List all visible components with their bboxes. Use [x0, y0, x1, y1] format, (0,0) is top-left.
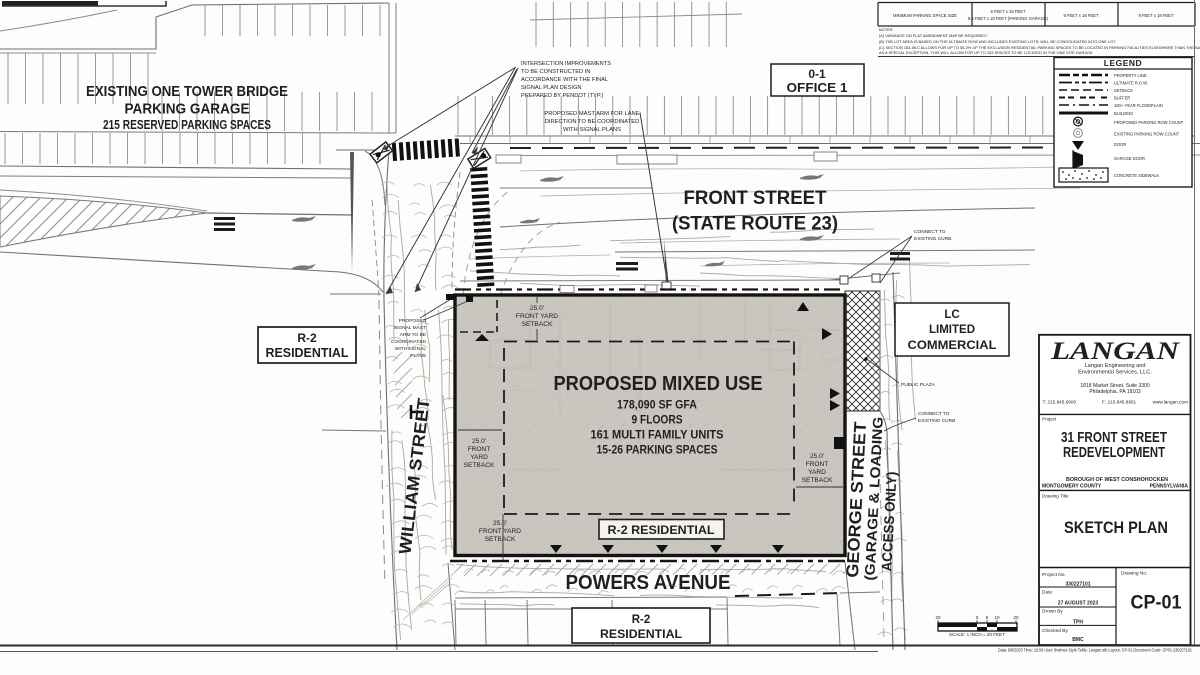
svg-text:LC: LC	[944, 309, 959, 321]
svg-text:161 MULTI FAMILY UNITS: 161 MULTI FAMILY UNITS	[591, 428, 724, 442]
svg-text:YARD: YARD	[470, 454, 488, 461]
svg-text:215 RESERVED PARKING SPACES: 215 RESERVED PARKING SPACES	[103, 118, 271, 132]
svg-text:SIGNAL PLAN DESIGN: SIGNAL PLAN DESIGN	[521, 85, 581, 91]
svg-text:TPH: TPH	[1073, 620, 1083, 626]
svg-text:PROPOSED PARKING ROW COUNT: PROPOSED PARKING ROW COUNT	[1114, 120, 1184, 125]
svg-text:100+-YEAR FLOODPLAIN: 100+-YEAR FLOODPLAIN	[1114, 103, 1163, 108]
svg-text:20: 20	[1013, 615, 1019, 620]
svg-text:RESIDENTIAL: RESIDENTIAL	[600, 629, 682, 641]
svg-text:ULTIMATE R.O.W.: ULTIMATE R.O.W.	[1114, 81, 1148, 86]
svg-text:(STATE ROUTE 23): (STATE ROUTE 23)	[672, 214, 838, 235]
svg-text:CONNECT TO: CONNECT TO	[914, 229, 946, 235]
svg-text:0: 0	[976, 615, 979, 620]
svg-text:25.0': 25.0'	[493, 520, 507, 527]
svg-text:T: 215.845.6900: T: 215.845.6900	[1043, 400, 1077, 405]
svg-text:25.0': 25.0'	[810, 453, 824, 460]
svg-text:www.langan.com: www.langan.com	[1153, 400, 1189, 405]
svg-text:EXISTING CURB: EXISTING CURB	[918, 418, 955, 424]
svg-text:FRONT YARD: FRONT YARD	[516, 313, 558, 320]
svg-text:PROPOSED MIXED USE: PROPOSED MIXED USE	[554, 373, 763, 395]
svg-text:Drawing Title: Drawing Title	[1042, 494, 1069, 499]
svg-text:AS A SPECIAL EXCEPTION. THIS W: AS A SPECIAL EXCEPTION. THIS WILL ALLOW …	[879, 50, 1094, 55]
svg-text:SETBACK: SETBACK	[802, 477, 833, 484]
svg-text:Checked By: Checked By	[1042, 628, 1068, 634]
svg-text:BUFFER: BUFFER	[1114, 96, 1130, 101]
svg-text:DOOR: DOOR	[1114, 142, 1126, 147]
svg-text:REDEVELOPMENT: REDEVELOPMENT	[1063, 444, 1165, 461]
svg-text:BOROUGH OF WEST CONSHOHOCKEN: BOROUGH OF WEST CONSHOHOCKEN	[1066, 477, 1168, 483]
svg-text:Drawing No.: Drawing No.	[1121, 571, 1147, 577]
svg-text:WITH SIGNAL: WITH SIGNAL	[395, 346, 427, 352]
svg-text:CP-01: CP-01	[1131, 593, 1182, 614]
svg-text:LEGEND: LEGEND	[1104, 58, 1142, 68]
svg-text:EXISTING PARKING ROW COUNT: EXISTING PARKING ROW COUNT	[1114, 132, 1180, 137]
svg-text:NOTES:: NOTES:	[879, 27, 893, 32]
svg-text:SCALE: 1 INCH = 20 FEET: SCALE: 1 INCH = 20 FEET	[949, 632, 1005, 637]
svg-text:178,090 SF GFA: 178,090 SF GFA	[617, 398, 697, 412]
svg-text:8.5 FEET x 18 FEET (PARKING GA: 8.5 FEET x 18 FEET (PARKING GARAGE)	[968, 16, 1049, 21]
svg-text:PROPOSED: PROPOSED	[399, 318, 427, 324]
svg-text:CONNECT TO: CONNECT TO	[918, 411, 950, 417]
svg-text:Langan Engineering and: Langan Engineering and	[1085, 363, 1146, 369]
svg-text:F: 215.845.8901: F: 215.845.8901	[1102, 400, 1137, 405]
svg-text:5: 5	[986, 615, 989, 620]
svg-text:R-2 RESIDENTIAL: R-2 RESIDENTIAL	[608, 523, 715, 537]
svg-text:PROPOSED MAST ARM FOR LANE: PROPOSED MAST ARM FOR LANE	[544, 111, 639, 117]
svg-text:SETBACK: SETBACK	[522, 321, 553, 328]
svg-text:PUBLIC PLAZA: PUBLIC PLAZA	[901, 382, 936, 388]
svg-text:SETBACK: SETBACK	[1114, 88, 1133, 93]
svg-text:SETBACK: SETBACK	[485, 536, 516, 543]
svg-text:0-1: 0-1	[808, 67, 826, 81]
svg-text:27 AUGUST 2023: 27 AUGUST 2023	[1058, 600, 1099, 606]
svg-text:ACCORDANCE WITH THE FINAL: ACCORDANCE WITH THE FINAL	[521, 77, 608, 83]
svg-text:9 FEET x 18 FEET: 9 FEET x 18 FEET	[1063, 13, 1099, 18]
svg-text:(B) THE LOT AREA IS BASED ON: (B) THE LOT AREA IS BASED ON THE ULTIMAT…	[879, 39, 1116, 44]
svg-text:ARM TO BE: ARM TO BE	[400, 332, 426, 338]
svg-text:FRONT YARD: FRONT YARD	[479, 528, 521, 535]
svg-text:SIGNAL MAST: SIGNAL MAST	[394, 325, 426, 331]
svg-text:Philadelphia, PA 19103: Philadelphia, PA 19103	[1089, 389, 1141, 395]
svg-text:LANGAN: LANGAN	[1050, 338, 1180, 365]
svg-text:INTERSECTION IMPROVEMENTS: INTERSECTION IMPROVEMENTS	[521, 61, 611, 67]
svg-text:SETBACK: SETBACK	[464, 462, 495, 469]
svg-text:CONCRETE SIDEWALK: CONCRETE SIDEWALK	[1114, 173, 1159, 178]
svg-text:MONTGOMERY COUNTY: MONTGOMERY COUNTY	[1042, 484, 1102, 490]
svg-text:RESIDENTIAL: RESIDENTIAL	[266, 346, 349, 360]
svg-text:TO BE CONSTRUCTED IN: TO BE CONSTRUCTED IN	[521, 69, 590, 75]
svg-text:YARD: YARD	[808, 469, 826, 476]
svg-text:330227101: 330227101	[1065, 581, 1090, 587]
svg-text:DIRECTION TO BE COORDINATED: DIRECTION TO BE COORDINATED	[545, 119, 640, 125]
svg-text:Date: Date	[1042, 590, 1052, 596]
svg-text:FRONT: FRONT	[468, 446, 491, 453]
svg-text:25.0': 25.0'	[472, 438, 486, 445]
svg-text:R-2: R-2	[632, 614, 651, 626]
svg-text:LIMITED: LIMITED	[929, 324, 975, 336]
svg-text:COMMERCIAL: COMMERCIAL	[908, 338, 997, 352]
svg-text:Project No.: Project No.	[1042, 572, 1066, 578]
svg-text:9 FEET x 18 FEET: 9 FEET x 18 FEET	[1138, 13, 1174, 18]
svg-text:(A) VARIANCE ON FLAT AMENDMEN: (A) VARIANCE ON FLAT AMENDMENT MAP BE RE…	[879, 33, 988, 38]
svg-text:Drown By: Drown By	[1042, 609, 1063, 615]
svg-text:GARAGE DOOR: GARAGE DOOR	[1114, 156, 1145, 161]
svg-text:15-26 PARKING SPACES: 15-26 PARKING SPACES	[597, 442, 718, 456]
svg-text:10: 10	[994, 615, 1000, 620]
svg-text:POWERS AVENUE: POWERS AVENUE	[566, 572, 731, 594]
svg-text:FRONT: FRONT	[806, 461, 829, 468]
svg-text:PREPARED BY PENDOT (TYP.): PREPARED BY PENDOT (TYP.)	[521, 93, 603, 99]
svg-text:PLANS: PLANS	[410, 353, 426, 359]
svg-text:R-2: R-2	[297, 331, 317, 345]
svg-text:BMC: BMC	[1072, 637, 1084, 643]
svg-text:SKETCH PLAN: SKETCH PLAN	[1064, 518, 1168, 537]
svg-text:PROPERTY LINE: PROPERTY LINE	[1114, 73, 1147, 78]
svg-text:PARKING GARAGE: PARKING GARAGE	[125, 101, 250, 118]
svg-text:MINIMUM PARKING SPACE SIZE: MINIMUM PARKING SPACE SIZE	[893, 13, 957, 18]
svg-text:EXISTING ONE TOWER BRIDGE: EXISTING ONE TOWER BRIDGE	[86, 83, 288, 100]
svg-text:9 FEET x 18 FEET: 9 FEET x 18 FEET	[990, 9, 1026, 14]
svg-text:WITH SIGNAL PLANS: WITH SIGNAL PLANS	[563, 127, 621, 133]
svg-text:9 FLOORS: 9 FLOORS	[632, 413, 683, 427]
svg-text:OFFICE 1: OFFICE 1	[787, 81, 848, 95]
svg-text:25.0': 25.0'	[530, 305, 544, 312]
svg-text:FRONT STREET: FRONT STREET	[684, 188, 827, 209]
svg-text:Data: 9/8/2023 Time: 16:59 U: Data: 9/8/2023 Time: 16:59 User: tholmes…	[998, 648, 1193, 653]
svg-text:Environmental Services, LLC.: Environmental Services, LLC.	[1078, 370, 1152, 376]
svg-text:BUILDING: BUILDING	[1114, 111, 1133, 116]
svg-text:Project: Project	[1042, 417, 1057, 422]
svg-text:EXISTING CURB: EXISTING CURB	[914, 236, 951, 242]
svg-text:20: 20	[935, 615, 941, 620]
svg-text:COORDINATED: COORDINATED	[391, 339, 427, 345]
svg-text:PENNSYLVANIA: PENNSYLVANIA	[1150, 484, 1189, 490]
